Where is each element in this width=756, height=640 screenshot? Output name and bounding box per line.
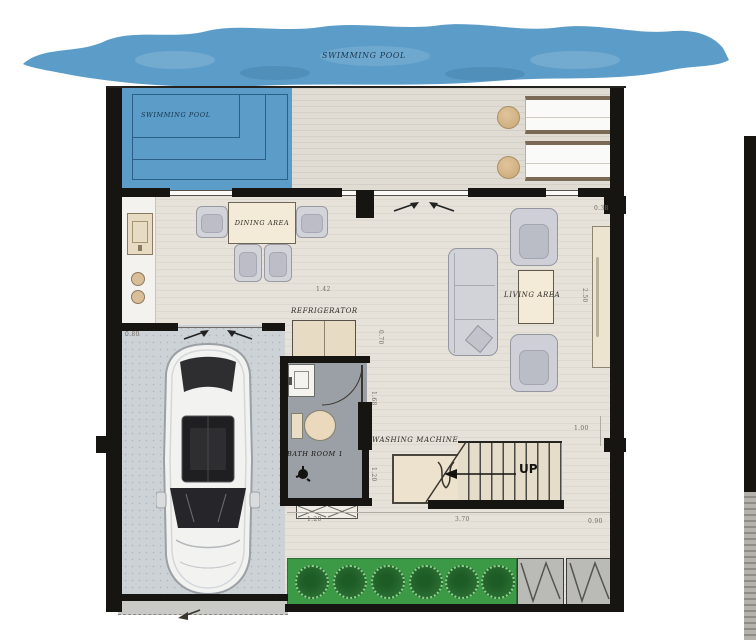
wall-left	[106, 88, 122, 612]
bathroom-label: BATH ROOM 1	[287, 450, 343, 458]
dim-0-80: 0.80	[125, 331, 140, 338]
garage-bottom-wall	[118, 594, 288, 601]
dining-chair	[264, 244, 292, 282]
tv-console	[592, 226, 612, 368]
dining-label: DINING AREA	[235, 219, 290, 227]
bathroom-wall	[280, 498, 372, 506]
bottom-wall	[285, 604, 615, 612]
dining-chair	[234, 244, 262, 282]
garage-top-wall	[122, 323, 178, 331]
bathroom-wall	[358, 402, 372, 450]
dim-1-00: 1.00	[574, 425, 589, 432]
bathroom-wall	[280, 356, 288, 506]
neighbor-plan-wall	[744, 136, 756, 492]
bush	[409, 565, 443, 599]
door-swing-arrow	[428, 200, 456, 213]
living-label: LIVING AREA	[504, 291, 560, 299]
bush	[371, 565, 405, 599]
driveway-arrow	[176, 607, 202, 621]
bush	[481, 565, 515, 599]
up-arrow	[444, 468, 520, 480]
dim-0-90: 0.90	[588, 518, 603, 525]
stove-burner	[131, 272, 145, 286]
house-top-edge	[106, 86, 626, 88]
wall-pier	[604, 438, 626, 452]
dim-2-50: 2.50	[581, 288, 588, 303]
shower-drain	[294, 464, 314, 484]
wall-column	[356, 190, 374, 218]
dim-0-70: 0.70	[377, 330, 384, 345]
dim-1-20-bath: 1.20	[307, 516, 322, 523]
floor-plan: SWIMMING POOL SWIMMING POOL DINING AREA	[0, 0, 756, 640]
wall-right	[610, 88, 624, 612]
wall-segment	[468, 188, 546, 197]
up-label: UP	[519, 462, 538, 476]
armchair	[510, 208, 558, 266]
bush	[295, 565, 329, 599]
dim-1-20-wash: 1.20	[370, 467, 377, 482]
wall-segment	[122, 188, 170, 197]
dim-3-70: 3.70	[455, 516, 470, 523]
sun-lounger	[525, 96, 611, 134]
dim-0-38: 0.38	[594, 205, 609, 212]
dining-chair	[196, 206, 228, 238]
sun-lounger	[525, 141, 611, 181]
swimming-pool	[122, 88, 292, 192]
gate-panel	[566, 558, 613, 606]
dim-1-42: 1.42	[316, 286, 331, 293]
bathroom-door-arc	[320, 363, 364, 407]
armchair	[510, 334, 558, 392]
dimension-line	[600, 416, 601, 446]
door-swing-arrow	[392, 200, 420, 213]
bush	[445, 565, 479, 599]
wall-segment	[232, 188, 342, 197]
dimension-line	[287, 512, 613, 513]
car	[156, 340, 260, 598]
kitchen-sink	[127, 213, 153, 255]
stairs-bottom-wall	[428, 500, 564, 509]
side-table	[497, 156, 520, 179]
bush	[333, 565, 367, 599]
refrigerator-label: REFRIGERATOR	[291, 307, 358, 315]
washing-machine-label: WASHING MACHINE	[372, 436, 458, 444]
dining-chair	[296, 206, 328, 238]
bathroom-wall	[280, 356, 370, 363]
neighbor-plan-floor	[744, 492, 756, 640]
side-table	[497, 106, 520, 129]
sofa	[448, 248, 498, 356]
door-swing-arrow	[226, 328, 254, 341]
pool-inner-label: SWIMMING POOL	[141, 111, 211, 119]
garage-top-wall	[262, 323, 285, 331]
driveway	[118, 601, 288, 615]
gate-panel	[517, 558, 564, 606]
wash-basin	[288, 364, 315, 397]
stove-burner	[131, 290, 145, 304]
toilet	[291, 409, 339, 443]
dining-table: DINING AREA	[228, 202, 296, 244]
door-swing-arrow	[182, 328, 210, 341]
wall-pier	[96, 436, 122, 453]
refrigerator	[292, 320, 356, 360]
dim-1-68: 1.68	[370, 391, 377, 406]
sofa-pillow	[465, 325, 493, 353]
pool-top-label: SWIMMING POOL	[322, 51, 406, 60]
